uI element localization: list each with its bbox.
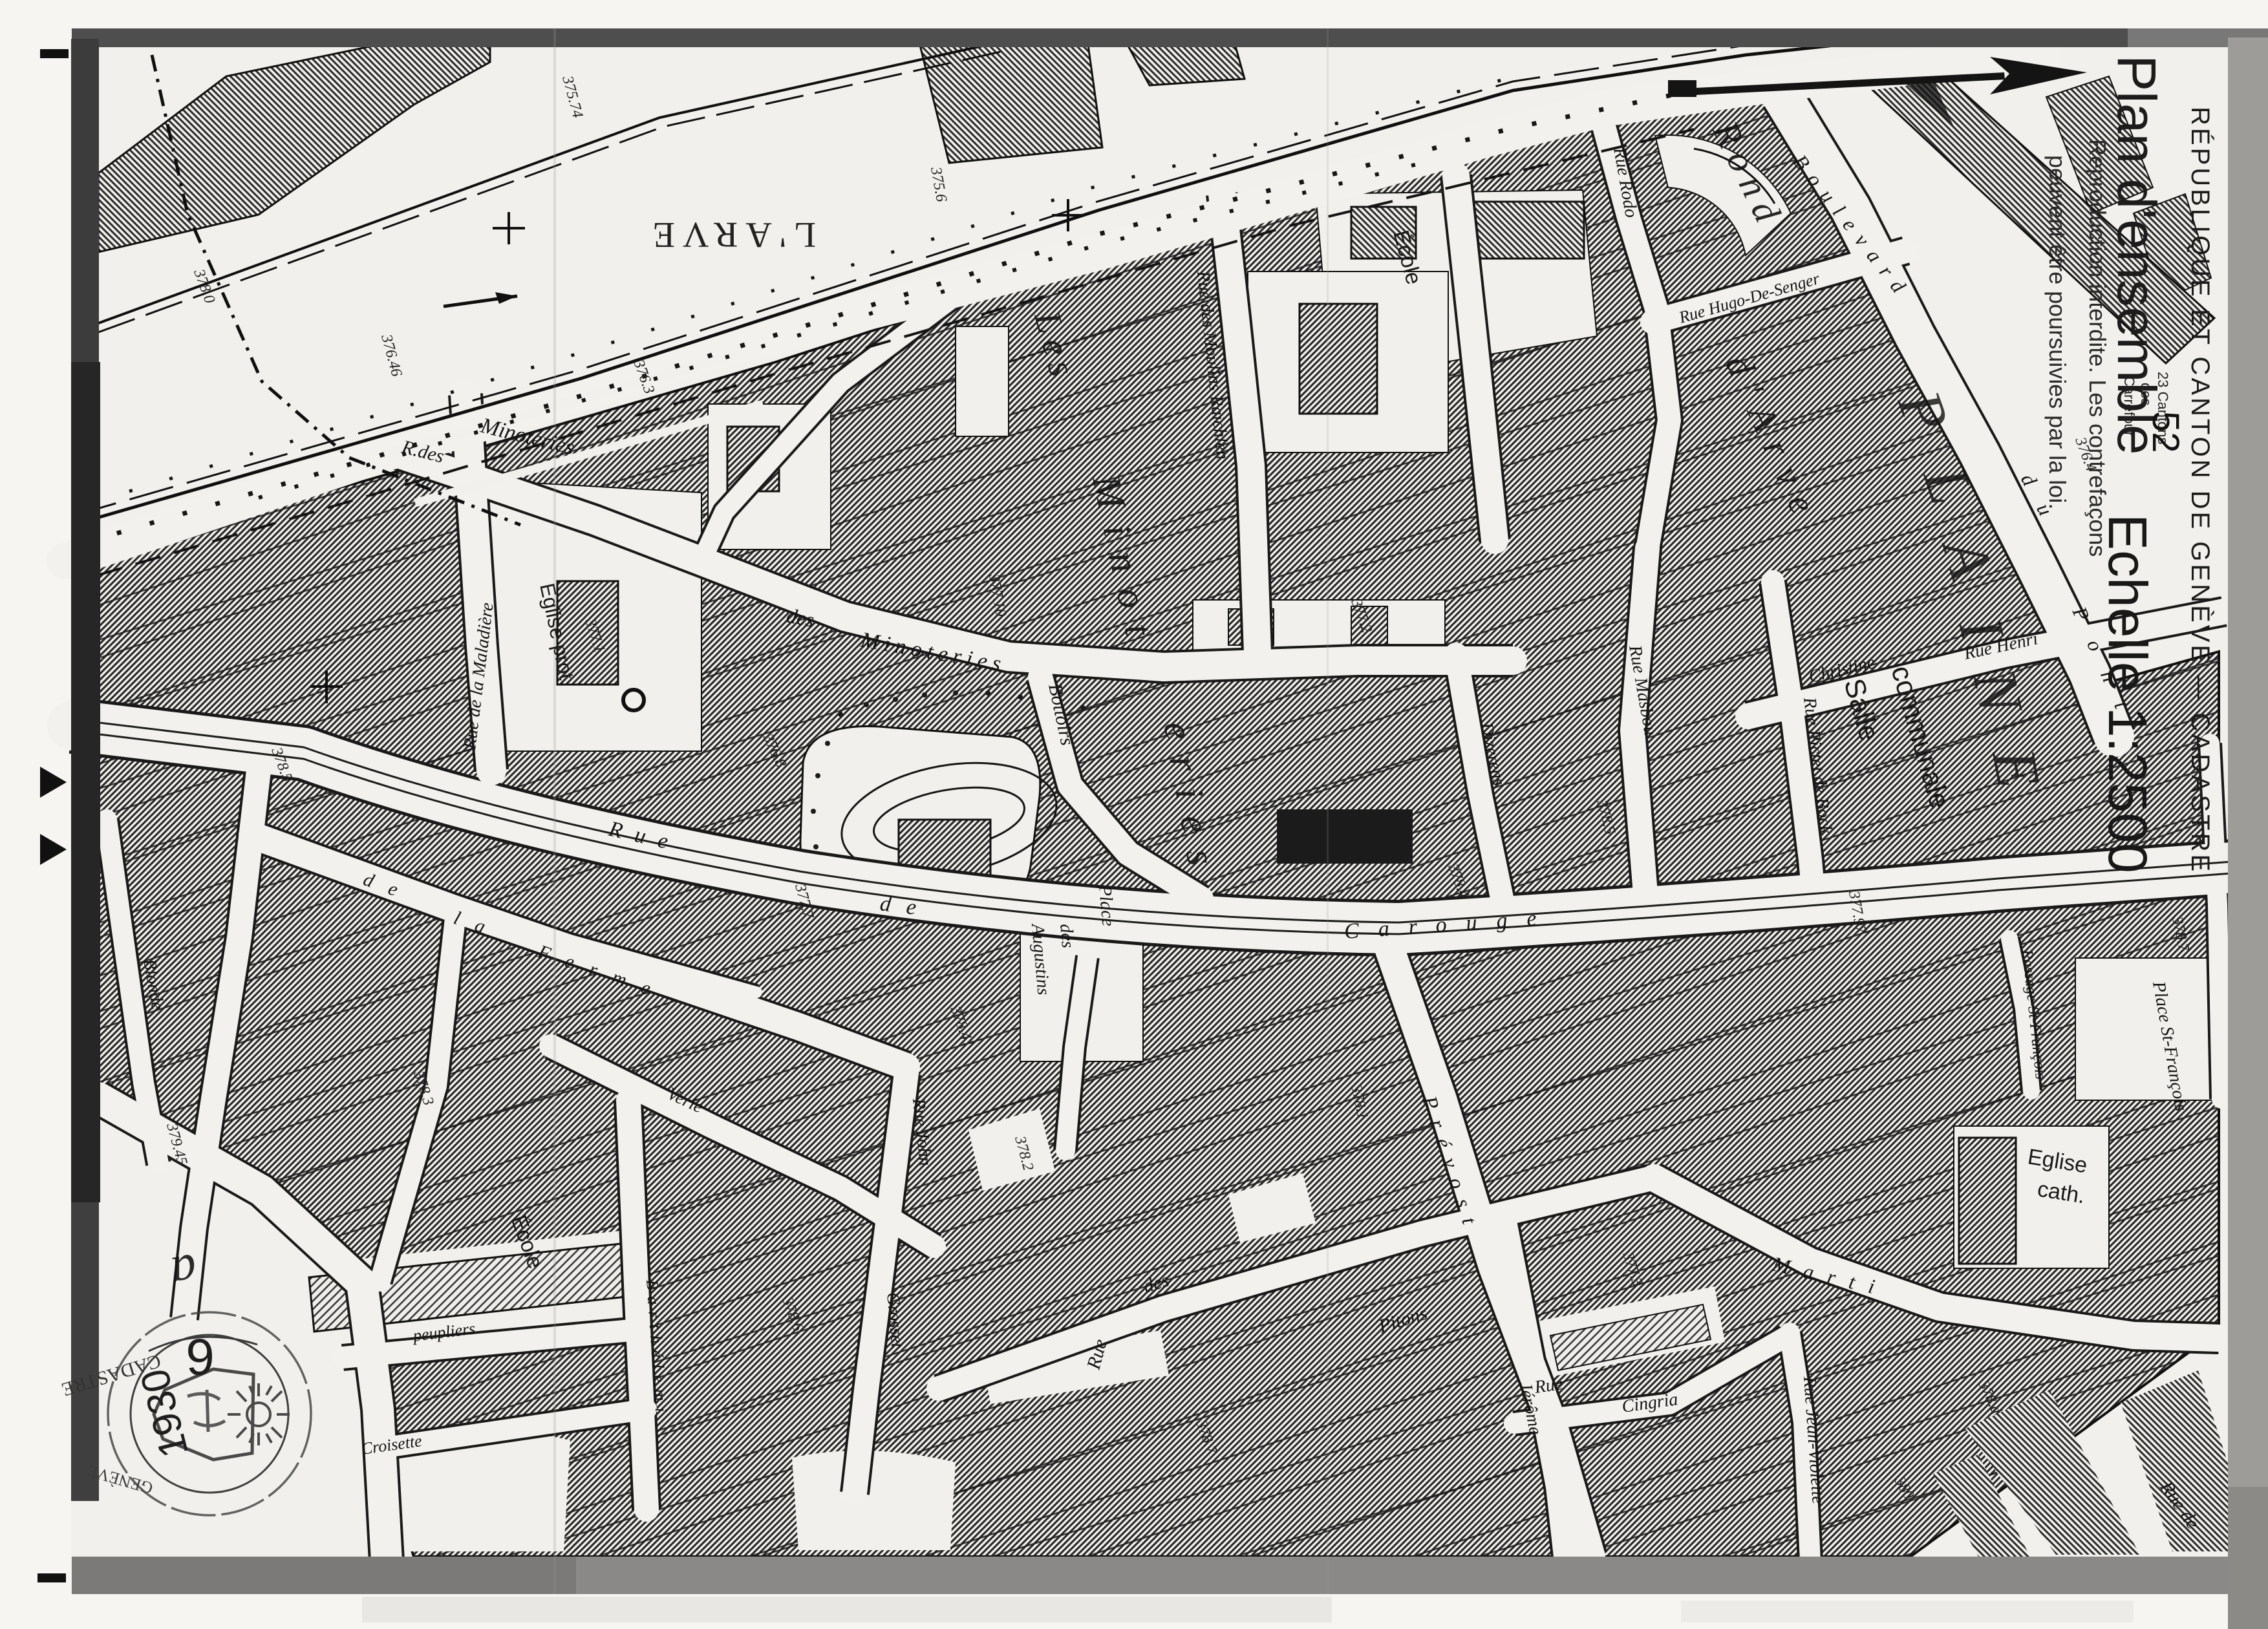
svg-text:peuvent être poursuivies par l: peuvent être poursuivies par la loi. — [2044, 155, 2071, 509]
svg-text:des: des — [1056, 923, 1078, 949]
svg-text:Place: Place — [1095, 884, 1118, 927]
svg-text:L'ARVE: L'ARVE — [645, 215, 816, 255]
svg-text:Carrefour: Carrefour — [2121, 376, 2137, 436]
svg-text:des: des — [2138, 383, 2154, 405]
svg-text:6: 6 — [186, 1328, 215, 1386]
svg-text:RÉPUBLIQUE ET CANTON DE GENÈVE: RÉPUBLIQUE ET CANTON DE GENÈVE — CADASTR… — [2186, 107, 2215, 874]
svg-text:52: 52 — [2145, 411, 2187, 453]
svg-text:Reproduction interdite. Les co: Reproduction interdite. Les contrefaçons — [2084, 139, 2111, 557]
